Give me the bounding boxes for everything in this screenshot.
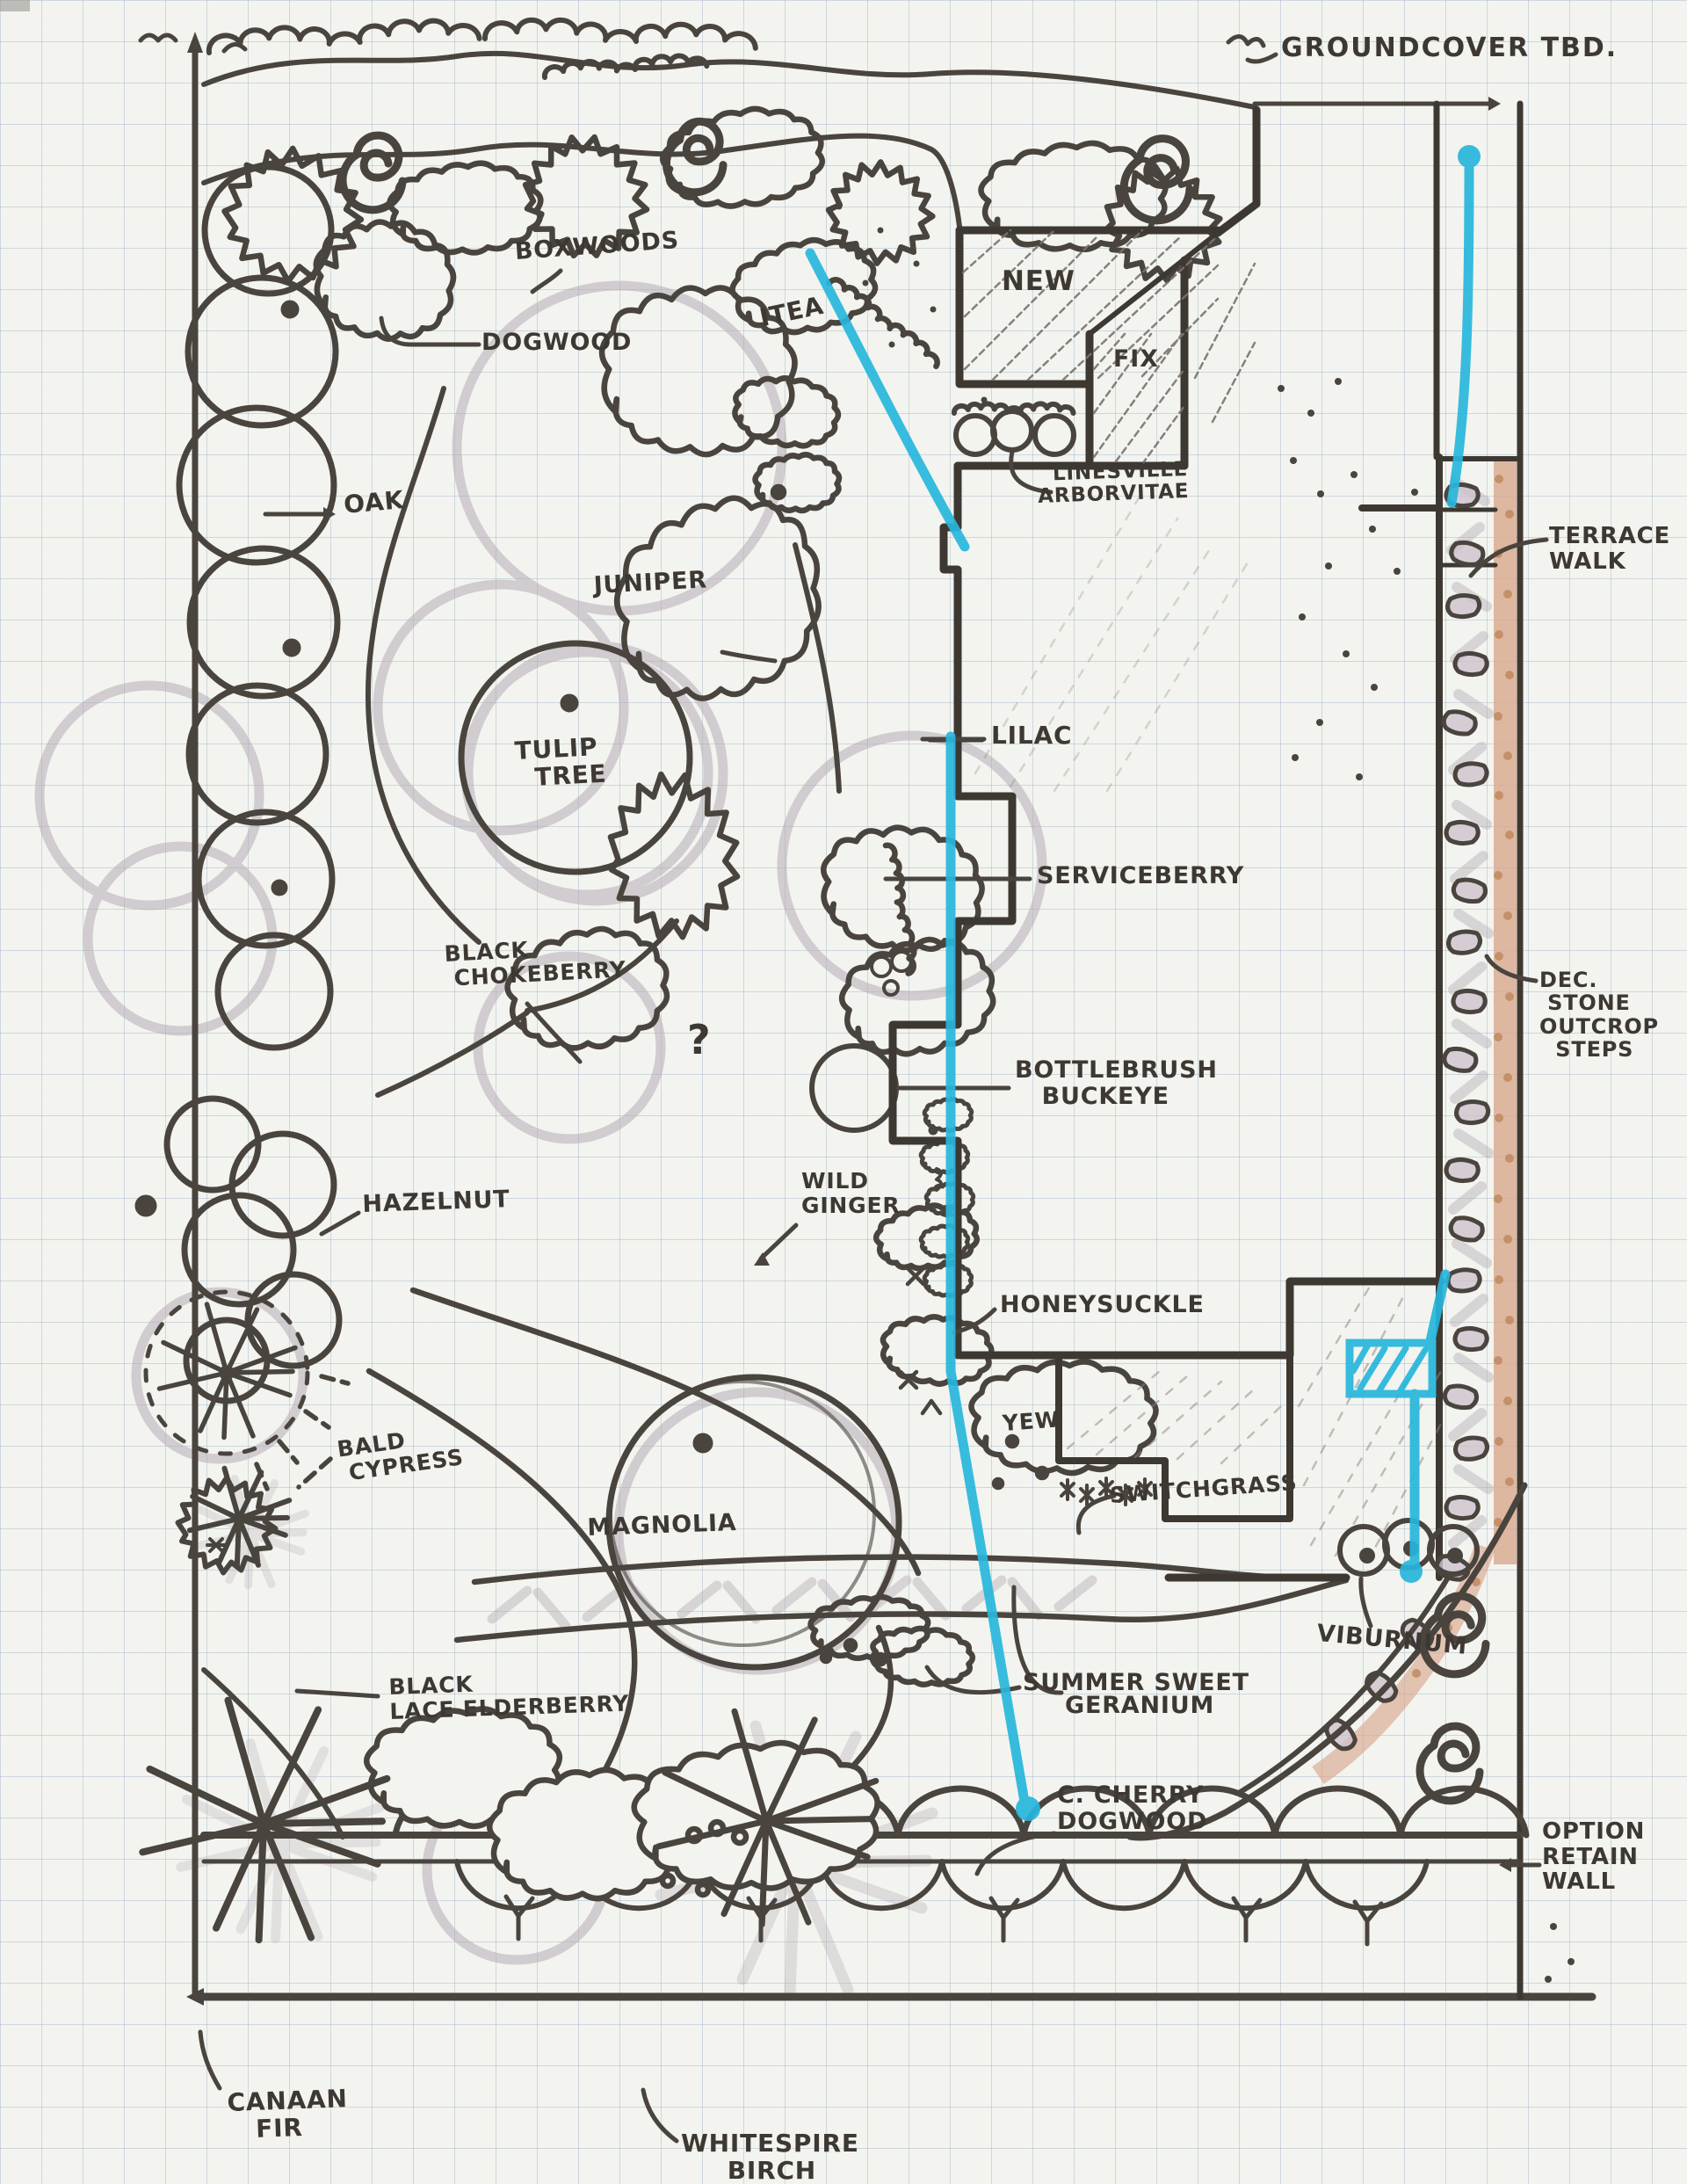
label-canaan-fir: CANAAN FIR xyxy=(227,2086,349,2144)
label-magnolia: MAGNOLIA xyxy=(587,1510,737,1542)
label-bottlebrush-buckeye: BOTTLEBRUSH BUCKEYE xyxy=(1015,1057,1218,1109)
label-oak: OAK xyxy=(343,487,405,519)
honeysuckle-blobs xyxy=(873,1201,996,1413)
label-new: NEW xyxy=(1002,266,1075,296)
bottlebrush-buckeye-circle xyxy=(812,1046,896,1130)
label-geranium: GERANIUM xyxy=(1065,1693,1214,1719)
label-hazelnut: HAZELNUT xyxy=(362,1186,510,1218)
label-dogwood: DOGWOOD xyxy=(481,330,632,356)
label-linesville-arborvitae: LINESVILLE ARBORVITAE xyxy=(1037,459,1190,509)
label-yew: YEW xyxy=(1002,1407,1061,1435)
label-wild-ginger: WILD GINGER xyxy=(801,1169,900,1217)
label-option-retain-wall: OPTION RETAIN WALL xyxy=(1542,1819,1645,1895)
plan-drawing xyxy=(0,0,1687,2184)
label-summer-sweet: SUMMER SWEET xyxy=(1023,1670,1249,1696)
patio-hatch xyxy=(975,492,1441,1563)
arborvitae-row xyxy=(954,403,1074,454)
label-tulip-tree: TULIP TREE xyxy=(514,734,607,793)
label-honeysuckle: HONEYSUCKLE xyxy=(1000,1292,1205,1318)
label-c-cherry-dogwood: C. CHERRY DOGWOOD xyxy=(1057,1782,1207,1834)
label-black-chokeberry: BLACK CHOKEBERRY xyxy=(444,932,626,990)
left-tree-row xyxy=(179,167,337,1048)
hazelnut-cluster xyxy=(138,1099,339,1401)
itea-cluster xyxy=(727,233,881,511)
label-black-lace-elderberry: BLACK LACE ELDERBERRY xyxy=(388,1666,630,1723)
canaan-fir-star xyxy=(142,1701,387,1941)
label-juniper: JUNIPER xyxy=(593,567,708,599)
geranium-hatch xyxy=(492,1580,1092,1626)
label-terrace-walk: TERRACE WALK xyxy=(1549,524,1670,574)
spiral-icon xyxy=(343,121,1190,221)
label-whitespire-birch: WHITESPIRE BIRCH xyxy=(681,2130,859,2184)
label-fix: FIX xyxy=(1113,346,1159,373)
label-groundcover-tbd: GROUNDCOVER TBD. xyxy=(1281,33,1618,62)
label-serviceberry: SERVICEBERRY xyxy=(1037,863,1244,889)
plan-canvas: GROUNDCOVER TBD. BOXWOODS ITEA DOGWOOD O… xyxy=(0,0,1687,2184)
yew-blob xyxy=(967,1356,1158,1487)
label-dec-stone-outcrop-steps: DEC. STONE OUTCROP STEPS xyxy=(1539,969,1659,1062)
label-question-mark: ? xyxy=(687,1018,711,1063)
label-lilac: LILAC xyxy=(991,722,1072,750)
